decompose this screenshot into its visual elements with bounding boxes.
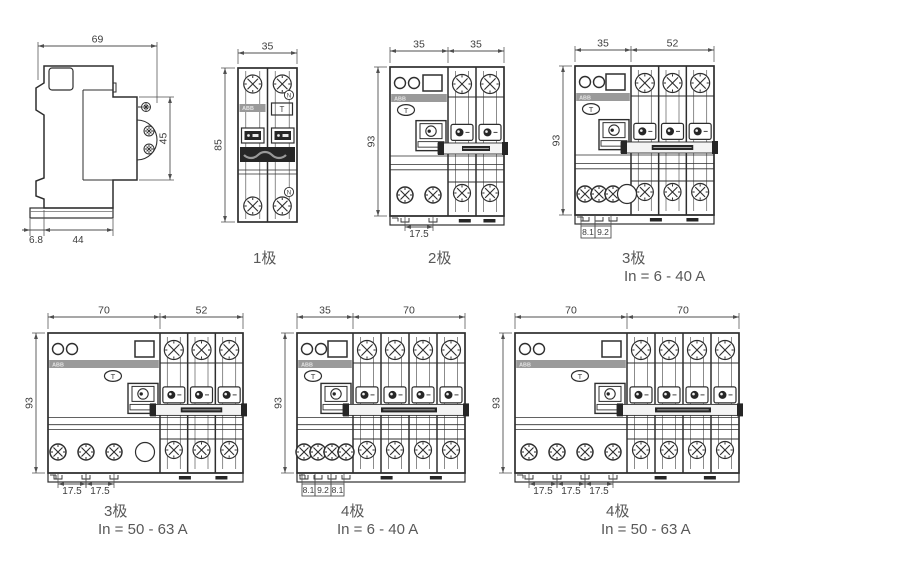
dimension-label: 17.5: [62, 486, 82, 497]
mount-clip: [328, 475, 336, 479]
breaker-side-outline: [36, 66, 137, 208]
mount-clip: [342, 475, 350, 479]
dimension-label: 17.5: [533, 486, 553, 497]
test-button-label: T: [111, 372, 116, 381]
tie-bar-endcap: [617, 403, 623, 416]
test-button-label: T: [578, 372, 583, 381]
tie-bar-endcap: [621, 141, 627, 154]
indicator-window: [302, 344, 313, 355]
dim-arrow: [501, 333, 505, 339]
dimension-label: 35: [470, 39, 482, 51]
dimension-label: 6.8: [29, 235, 43, 246]
dim-arrow: [621, 315, 627, 319]
indicator-window: [594, 77, 605, 88]
abb-logo-band: [49, 360, 159, 368]
dimension-label: 93: [273, 397, 285, 409]
dim-arrow: [459, 315, 465, 319]
indicator-window-square: [135, 341, 154, 357]
tie-bar-endcap: [343, 403, 349, 416]
indicator-window: [534, 344, 545, 355]
mount-clip: [581, 217, 589, 221]
terminal-block-glyph: [485, 130, 488, 133]
figure-caption-3pole-small: 3极: [622, 250, 645, 268]
figure-rating-3pole-large: In = 50 - 63 A: [98, 521, 188, 539]
dimension-label: 70: [403, 305, 415, 317]
dim-arrow: [390, 49, 396, 53]
knockout-circle: [618, 185, 637, 204]
terminal-block-glyph: [446, 393, 449, 396]
indicator-window-square: [602, 341, 621, 357]
dim-arrow: [223, 216, 227, 222]
rail-clip: [483, 219, 495, 223]
dim-arrow: [291, 51, 297, 55]
terminal-block-glyph: [224, 393, 227, 396]
dim-arrow: [347, 315, 353, 319]
rail-clip: [704, 476, 716, 480]
tie-bar-endcap: [438, 142, 444, 155]
test-button-label: T: [280, 105, 285, 114]
dim-arrow: [561, 209, 565, 215]
dim-arrow: [501, 467, 505, 473]
dim-arrow: [34, 467, 38, 473]
abb-logo-text: ABB: [519, 362, 531, 368]
rail-clip: [655, 476, 667, 480]
dim-arrow: [283, 333, 287, 339]
dimension-label: 93: [491, 397, 503, 409]
switch-rotary-handle: [605, 389, 615, 399]
figure-caption-4pole-large: 4极: [606, 503, 629, 521]
abb-logo-text: ABB: [394, 96, 406, 102]
indicator-window-square: [328, 341, 347, 357]
test-button-label: T: [311, 372, 316, 381]
dim-arrow: [708, 48, 714, 52]
dim-arrow: [223, 68, 227, 74]
dim-arrow: [297, 315, 303, 319]
dimension-label: 70: [565, 305, 577, 317]
terminal-glyph: [277, 134, 280, 137]
dim-arrow: [38, 44, 44, 48]
terminal-block-glyph: [457, 130, 460, 133]
dimension-label: 44: [72, 235, 84, 246]
terminal-glyph: [253, 134, 259, 137]
indicator-window: [53, 344, 64, 355]
indicator-window: [67, 344, 78, 355]
switch-rotary-handle: [138, 389, 148, 399]
figure-caption-4pole-small: 4极: [341, 503, 364, 521]
neutral-mark-label: N: [287, 92, 291, 99]
tie-bar-endcap: [463, 403, 469, 416]
terminal-block-glyph: [418, 393, 421, 396]
dimension-label: 17.5: [409, 229, 429, 240]
dimension-label: 8.1: [303, 485, 315, 495]
terminal-block-glyph: [636, 393, 639, 396]
dim-arrow: [498, 49, 504, 53]
figure-caption-3pole-large: 3极: [104, 503, 127, 521]
abb-logo-text: ABB: [242, 106, 254, 112]
terminal-block-glyph: [362, 393, 365, 396]
dim-arrow: [448, 49, 454, 53]
figure-pole-3-6-40: ABBT3552938.19.2: [551, 38, 719, 239]
terminal-block-glyph: [640, 129, 643, 132]
dimension-label: 9.2: [597, 227, 609, 237]
terminal-block-glyph: [695, 129, 698, 132]
figure-pole-4-6-40: ABBT3570938.19.28.1: [273, 305, 470, 497]
rail-clip: [459, 219, 471, 223]
figure-pole-1: NNABBT3585: [213, 41, 298, 223]
rail-clip: [179, 476, 191, 480]
terminal-glyph: [247, 134, 250, 137]
terminal-block-glyph: [692, 393, 695, 396]
rail-clip: [215, 476, 227, 480]
din-rail-strip: [48, 473, 243, 482]
terminal-block-glyph: [720, 393, 723, 396]
dim-arrow: [34, 333, 38, 339]
dimension-label: 70: [677, 305, 689, 317]
dim-arrow: [154, 315, 160, 319]
dimension-label: 69: [92, 34, 104, 46]
switch-rotary-handle: [609, 125, 619, 135]
abb-logo-text: ABB: [52, 362, 64, 368]
tie-bar-endcap: [712, 141, 718, 154]
dimension-label: 52: [196, 305, 208, 317]
terminal-block-glyph: [664, 393, 667, 396]
dimension-label: 70: [98, 305, 110, 317]
mount-clip: [300, 475, 308, 479]
dimension-label: 93: [24, 397, 36, 409]
neutral-mark-label: N: [287, 189, 291, 196]
dimension-label: 93: [366, 136, 378, 148]
rocker-handle-band: [240, 147, 295, 162]
test-button-label: T: [589, 105, 594, 114]
side-rib: [113, 83, 116, 92]
figure-rating-4pole-large: In = 50 - 63 A: [601, 521, 691, 539]
figure-pole-2: ABBT35359317.5: [366, 39, 509, 241]
dimension-drawing-page: 69456.844NNABBT3585ABBT35359317.5ABBT355…: [0, 0, 900, 580]
dim-arrow: [353, 315, 359, 319]
dimension-label: 8.1: [332, 485, 344, 495]
dim-arrow: [283, 467, 287, 473]
mount-clip: [595, 217, 603, 221]
terminal-glyph: [283, 134, 289, 137]
dimension-label: 9.2: [317, 485, 329, 495]
dimension-label: 35: [597, 38, 609, 50]
rail-clip: [381, 476, 393, 480]
dim-arrow: [627, 315, 633, 319]
rail-clip: [430, 476, 442, 480]
dimension-label: 52: [667, 38, 679, 50]
dimension-label: 93: [551, 135, 563, 147]
dim-arrow: [168, 174, 172, 180]
dim-arrow: [160, 315, 166, 319]
switch-lever-dot: [140, 392, 143, 395]
dim-arrow: [44, 228, 50, 232]
figure-pole-4-50-63: ABBT70709317.517.517.5: [491, 305, 744, 498]
rail-clip: [650, 218, 662, 222]
dimension-label: 17.5: [589, 486, 609, 497]
dimension-label: 17.5: [90, 486, 110, 497]
dimension-label: 8.1: [582, 227, 594, 237]
dim-arrow: [238, 51, 244, 55]
dim-arrow: [24, 228, 30, 232]
figure-caption-2pole: 2极: [428, 250, 451, 268]
switch-rotary-handle: [426, 126, 436, 136]
figure-rating-3pole-small: In = 6 - 40 A: [624, 268, 705, 286]
switch-lever-dot: [611, 128, 614, 131]
dim-arrow: [237, 315, 243, 319]
switch-lever-dot: [607, 392, 610, 395]
terminal-block-glyph: [197, 393, 200, 396]
dim-arrow: [168, 97, 172, 103]
switch-rotary-handle: [331, 389, 341, 399]
dim-arrow: [625, 48, 631, 52]
terminal-block-glyph: [668, 129, 671, 132]
dimension-label: 35: [319, 305, 331, 317]
indicator-window-square: [423, 75, 442, 91]
abb-logo-text: ABB: [301, 362, 313, 368]
tie-bar-endcap: [737, 403, 743, 416]
dim-arrow: [151, 44, 157, 48]
dim-arrow: [515, 315, 521, 319]
dimension-label: 45: [158, 133, 170, 145]
base-plate: [30, 208, 113, 218]
indicator-window: [316, 344, 327, 355]
terminal-block-glyph: [169, 393, 172, 396]
switch-lever-dot: [333, 392, 336, 395]
dim-arrow: [575, 48, 581, 52]
indicator-window: [409, 78, 420, 89]
dim-arrow: [376, 67, 380, 73]
dim-arrow: [376, 210, 380, 216]
knockout-circle: [136, 443, 155, 462]
indicator-window: [580, 77, 591, 88]
dim-arrow: [733, 315, 739, 319]
dim-arrow: [107, 228, 113, 232]
figure-caption-1pole: 1极: [253, 250, 276, 268]
technical-drawing-canvas: 69456.844NNABBT3585ABBT35359317.5ABBT355…: [0, 0, 900, 580]
mount-clip: [609, 217, 617, 221]
indicator-window-square: [606, 74, 625, 90]
tie-bar-endcap: [241, 403, 247, 416]
switch-lever-dot: [428, 129, 431, 132]
figure-pole-3-50-63: ABBT70529317.517.5: [24, 305, 248, 498]
figure-side-view: 69456.844: [22, 34, 174, 247]
dimension-label: 85: [213, 139, 225, 151]
rail-clip: [686, 218, 698, 222]
dim-arrow: [631, 48, 637, 52]
figure-rating-4pole-small: In = 6 - 40 A: [337, 521, 418, 539]
tie-bar-endcap: [150, 403, 156, 416]
indicator-window: [395, 78, 406, 89]
dim-arrow: [48, 315, 54, 319]
terminal-block-glyph: [390, 393, 393, 396]
dim-arrow: [442, 49, 448, 53]
abb-logo-text: ABB: [579, 95, 591, 101]
dimension-label: 35: [413, 39, 425, 51]
dim-arrow: [561, 66, 565, 72]
dimension-label: 17.5: [561, 486, 581, 497]
indicator-window: [520, 344, 531, 355]
test-button-label: T: [404, 106, 409, 115]
dimension-label: 35: [262, 41, 274, 53]
abb-logo-band: [516, 360, 626, 368]
tie-bar-endcap: [502, 142, 508, 155]
